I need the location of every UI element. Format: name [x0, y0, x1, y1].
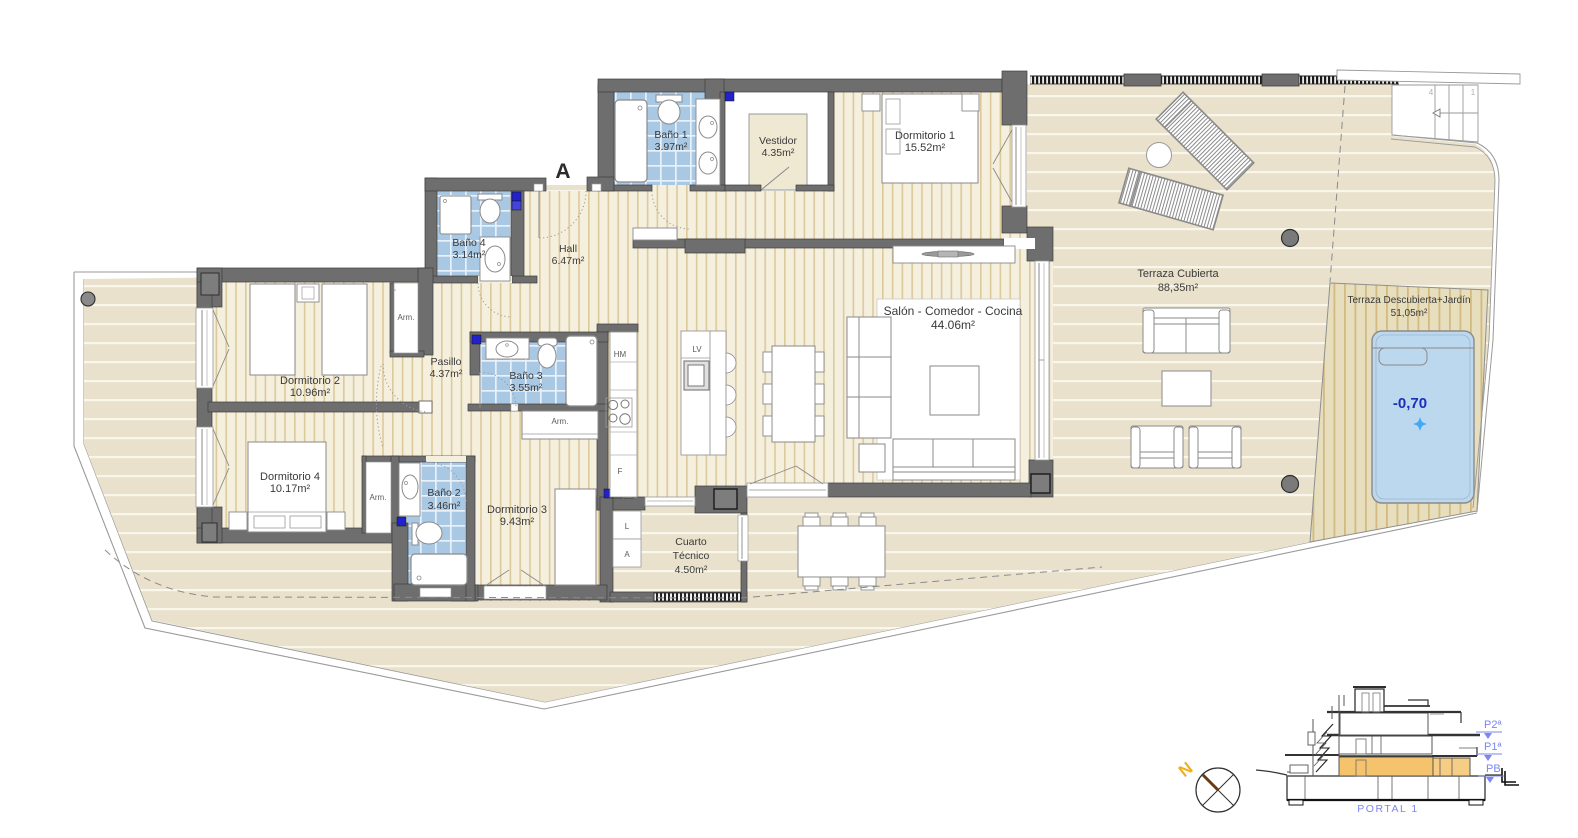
svg-text:51,05m²: 51,05m²: [1391, 308, 1428, 319]
svg-text:4.35m²: 4.35m²: [762, 147, 795, 159]
svg-text:Técnico: Técnico: [673, 550, 710, 562]
svg-text:3.46m²: 3.46m²: [428, 500, 461, 512]
svg-text:Terraza Cubierta: Terraza Cubierta: [1137, 268, 1219, 280]
svg-text:LV: LV: [692, 345, 702, 354]
svg-text:F: F: [618, 467, 623, 476]
svg-text:Baño 1: Baño 1: [654, 129, 687, 141]
svg-text:A: A: [624, 550, 630, 559]
svg-text:3.14m²: 3.14m²: [453, 249, 486, 261]
svg-text:Hall: Hall: [559, 243, 577, 255]
svg-text:Dormitorio 4: Dormitorio 4: [260, 471, 320, 483]
svg-text:1: 1: [1471, 88, 1476, 97]
svg-text:4.50m²: 4.50m²: [675, 564, 708, 576]
svg-text:4.37m²: 4.37m²: [430, 368, 463, 380]
svg-text:Arm.: Arm.: [370, 493, 387, 502]
svg-text:-0,70: -0,70: [1393, 395, 1427, 412]
svg-text:3.55m²: 3.55m²: [510, 382, 543, 394]
svg-text:Pasillo: Pasillo: [431, 356, 462, 368]
svg-text:15.52m²: 15.52m²: [905, 142, 946, 154]
svg-text:P2ª: P2ª: [1484, 719, 1502, 731]
svg-text:Baño 2: Baño 2: [427, 487, 460, 499]
svg-text:3.97m²: 3.97m²: [655, 141, 688, 153]
svg-text:P1ª: P1ª: [1484, 741, 1502, 753]
svg-text:Arm.: Arm.: [398, 313, 415, 322]
svg-text:Salón - Comedor - Cocina: Salón - Comedor - Cocina: [884, 304, 1023, 318]
svg-text:Baño 3: Baño 3: [509, 370, 542, 382]
svg-text:10.96m²: 10.96m²: [290, 387, 331, 399]
svg-text:Cuarto: Cuarto: [675, 536, 707, 548]
svg-text:Terraza Descubierta+Jardín: Terraza Descubierta+Jardín: [1347, 295, 1470, 306]
svg-text:6.47m²: 6.47m²: [552, 255, 585, 267]
svg-text:A: A: [555, 160, 570, 183]
svg-text:Dormitorio 2: Dormitorio 2: [280, 375, 340, 387]
svg-text:HM: HM: [614, 350, 627, 359]
svg-text:Arm.: Arm.: [552, 417, 569, 426]
svg-text:Dormitorio 3: Dormitorio 3: [487, 504, 547, 516]
svg-text:10.17m²: 10.17m²: [270, 483, 311, 495]
svg-text:9.43m²: 9.43m²: [500, 516, 535, 528]
svg-text:L: L: [625, 522, 630, 531]
svg-text:88,35m²: 88,35m²: [1158, 282, 1199, 294]
svg-text:44.06m²: 44.06m²: [931, 318, 975, 332]
svg-text:PORTAL 1: PORTAL 1: [1357, 803, 1418, 815]
svg-text:Baño 4: Baño 4: [452, 237, 485, 249]
svg-text:PB: PB: [1486, 763, 1501, 775]
svg-text:Dormitorio 1: Dormitorio 1: [895, 130, 955, 142]
svg-text:Vestidor: Vestidor: [759, 135, 797, 147]
svg-text:4: 4: [1429, 88, 1434, 97]
